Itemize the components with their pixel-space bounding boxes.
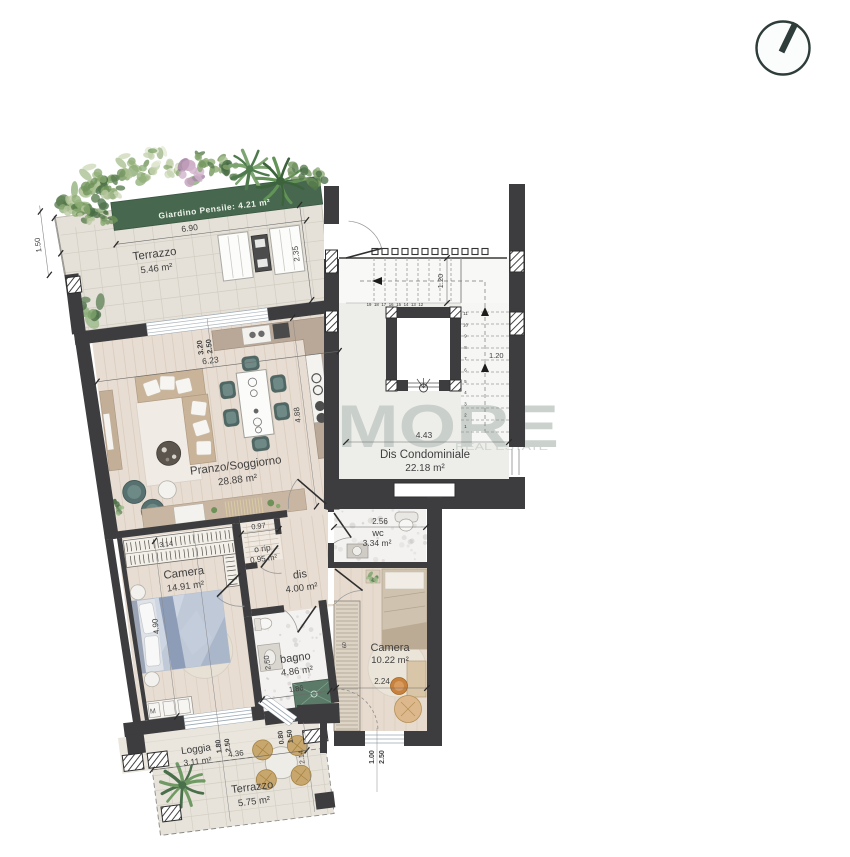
svg-text:10: 10 (463, 322, 468, 327)
svg-text:15: 15 (396, 302, 401, 307)
svg-text:6.23: 6.23 (202, 354, 220, 366)
svg-text:13: 13 (411, 302, 416, 307)
svg-text:12: 12 (418, 302, 423, 307)
svg-text:19: 19 (367, 302, 372, 307)
svg-text:Dis Condominiale: Dis Condominiale (380, 449, 470, 461)
svg-text:1.50: 1.50 (33, 237, 44, 253)
svg-text:17: 17 (381, 302, 386, 307)
svg-text:1.86: 1.86 (288, 683, 304, 694)
svg-text:60: 60 (342, 642, 349, 649)
svg-text:2.50: 2.50 (204, 339, 215, 355)
svg-text:16: 16 (389, 302, 394, 307)
svg-text:10.22 m²: 10.22 m² (371, 655, 409, 666)
svg-text:M: M (150, 708, 157, 716)
svg-text:2.50: 2.50 (379, 750, 386, 764)
svg-text:1.00: 1.00 (369, 750, 376, 764)
svg-text:3.34 m²: 3.34 m² (363, 538, 392, 548)
svg-text:1.20: 1.20 (436, 274, 445, 289)
svg-text:0.97: 0.97 (251, 521, 267, 532)
svg-text:22.18 m²: 22.18 m² (405, 463, 445, 474)
svg-text:2.50: 2.50 (262, 655, 273, 671)
svg-text:o rip: o rip (254, 542, 272, 554)
svg-text:dis: dis (292, 568, 308, 582)
svg-text:4.43: 4.43 (416, 430, 433, 440)
svg-text:11: 11 (463, 311, 468, 316)
svg-text:14: 14 (404, 302, 409, 307)
svg-text:1.20: 1.20 (489, 351, 504, 360)
svg-text:2.56: 2.56 (372, 517, 388, 526)
svg-text:6.90: 6.90 (181, 222, 199, 234)
svg-text:18: 18 (374, 302, 379, 307)
svg-text:2.24: 2.24 (374, 677, 390, 686)
svg-text:Camera: Camera (370, 642, 410, 654)
